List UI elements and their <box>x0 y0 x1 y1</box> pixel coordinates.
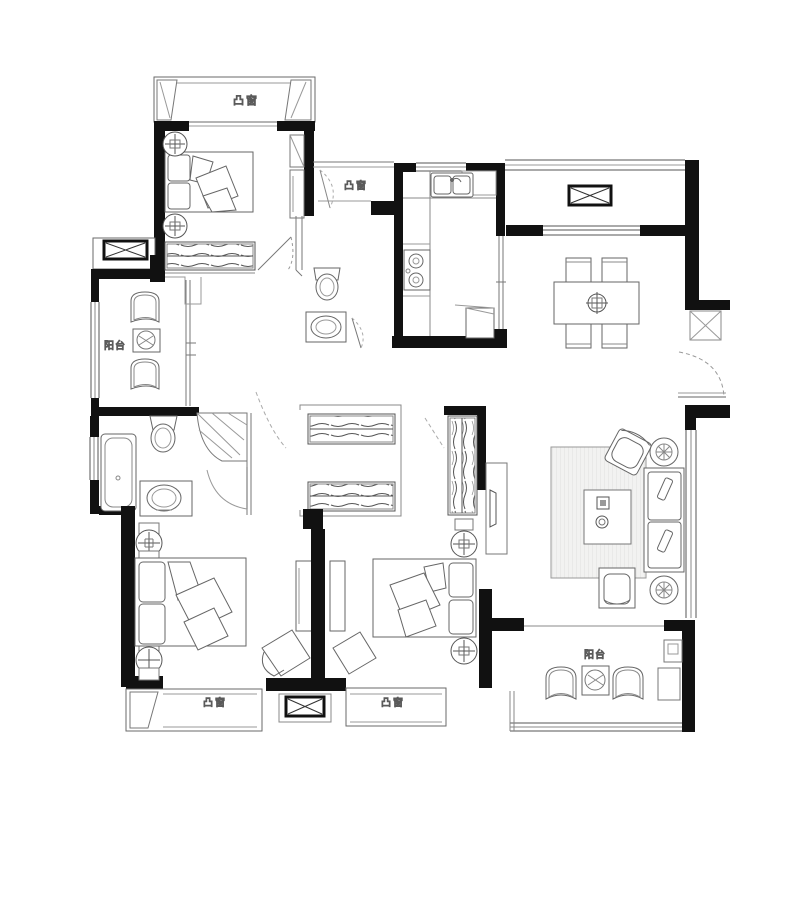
svg-text:凸窗: 凸窗 <box>203 696 227 709</box>
svg-text:凸窗: 凸窗 <box>381 696 405 709</box>
svg-text:阳台: 阳台 <box>584 648 606 661</box>
svg-text:阳台: 阳台 <box>104 339 126 352</box>
svg-text:凸窗: 凸窗 <box>233 93 259 107</box>
svg-text:凸窗: 凸窗 <box>344 179 368 192</box>
